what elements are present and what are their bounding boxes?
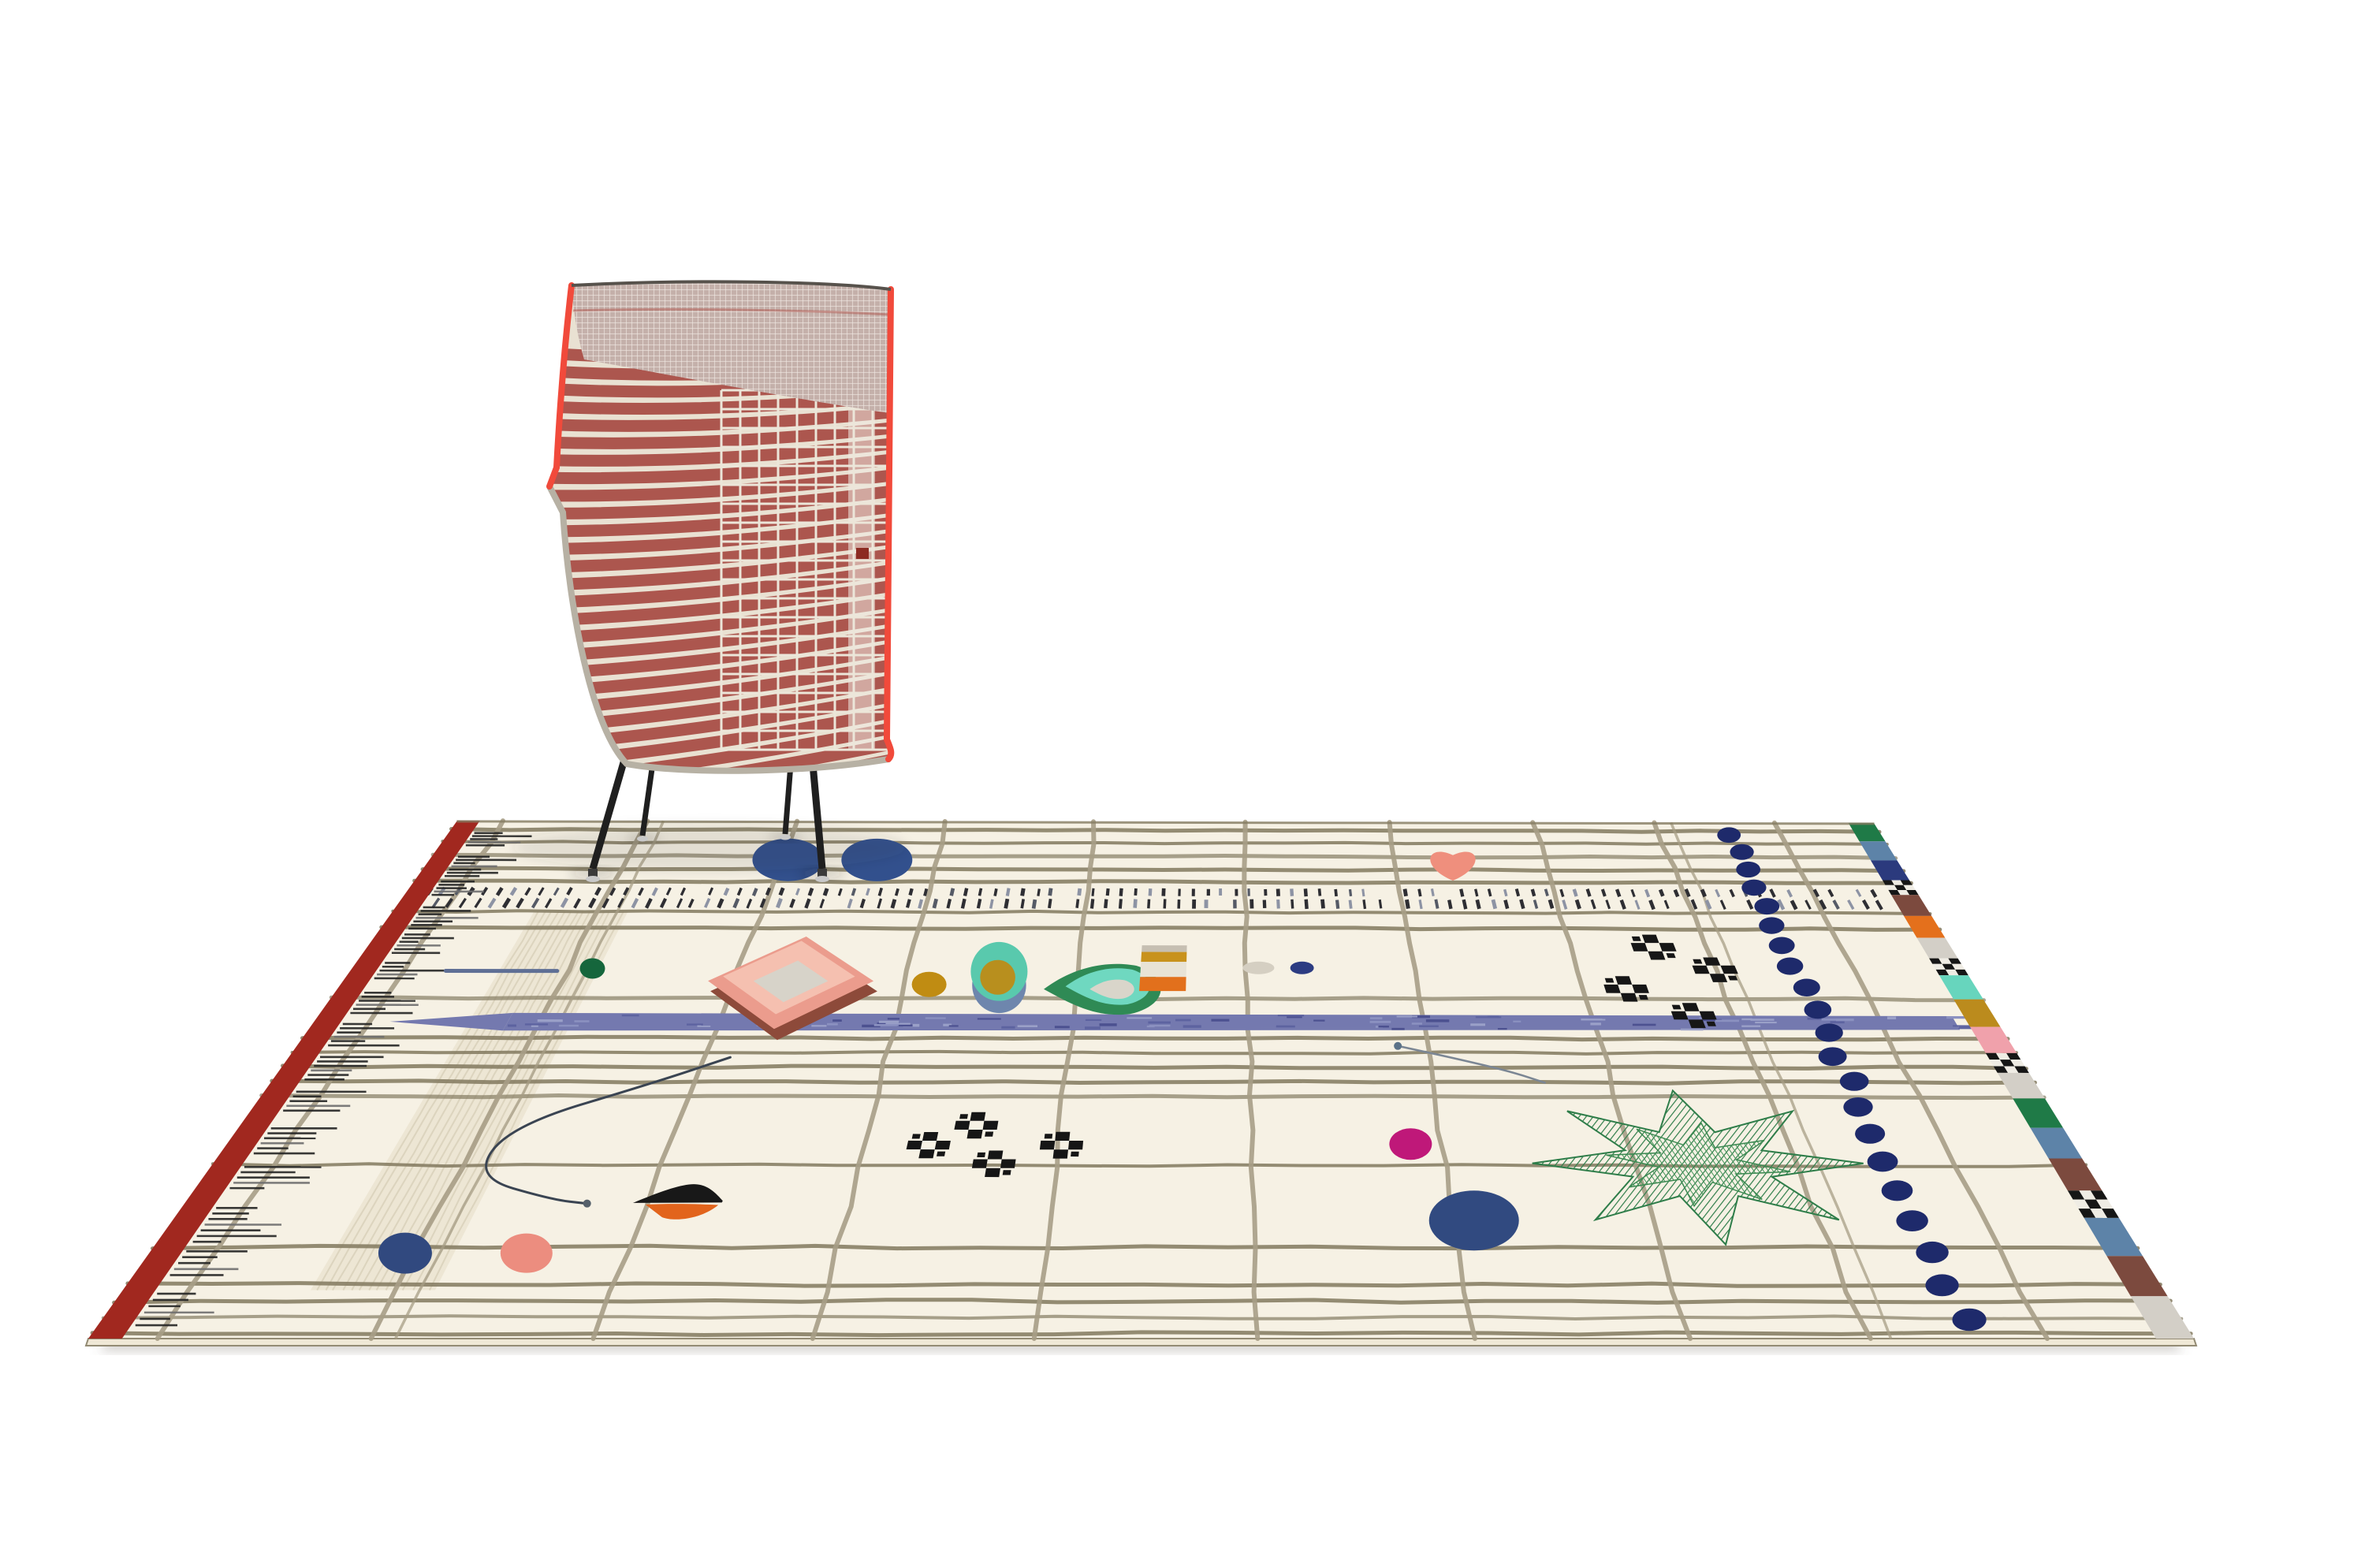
foot-glide xyxy=(815,876,829,882)
pom-dot xyxy=(1754,898,1779,914)
navy-dot-bottom-left xyxy=(378,1233,432,1274)
pom-dot xyxy=(1816,1023,1843,1041)
rug-bottom-edge xyxy=(86,1339,2196,1346)
pom-dot xyxy=(1925,1274,1958,1296)
pale-column xyxy=(848,390,875,750)
foot-glide xyxy=(780,835,791,840)
navy-mini-blob xyxy=(1291,962,1314,974)
chair-shadow xyxy=(512,824,907,871)
pom-dot xyxy=(1793,978,1820,996)
rug xyxy=(86,821,2196,1351)
foot-glide xyxy=(637,836,648,842)
striped-rect-motif xyxy=(1139,945,1187,991)
pom-dot xyxy=(1759,917,1784,933)
foot-glide xyxy=(586,876,600,882)
pom-dot xyxy=(1916,1242,1948,1263)
pom-dot xyxy=(1819,1047,1847,1066)
chair xyxy=(512,281,907,882)
pom-dot xyxy=(1769,937,1795,955)
product-photo xyxy=(0,0,2365,1568)
pom-dot xyxy=(1717,827,1741,843)
mustard-dot xyxy=(912,972,947,997)
pom-dot xyxy=(1777,958,1803,975)
brand-mark xyxy=(856,548,869,559)
piping-red-edge xyxy=(887,289,891,759)
pom-dot xyxy=(1952,1309,1986,1331)
pom-dot xyxy=(1736,862,1760,877)
green-dot xyxy=(580,959,605,979)
white-mini-oval xyxy=(1242,962,1274,974)
pom-dot xyxy=(1882,1180,1913,1201)
magenta-dot xyxy=(1389,1128,1432,1160)
pom-dot xyxy=(1896,1210,1928,1231)
pom-dot xyxy=(1843,1097,1872,1117)
pom-dot xyxy=(1741,880,1766,896)
salmon-dot-bottom xyxy=(501,1234,553,1273)
eye-motif xyxy=(970,942,1027,1013)
pom-dot xyxy=(1804,1000,1832,1019)
scene-svg xyxy=(0,0,2365,1568)
pom-dot xyxy=(1840,1072,1869,1091)
pom-dot xyxy=(1855,1124,1885,1144)
pom-dot xyxy=(1730,844,1753,860)
navy-dot-bottom-right xyxy=(1429,1190,1519,1250)
pom-dot xyxy=(1868,1152,1898,1172)
